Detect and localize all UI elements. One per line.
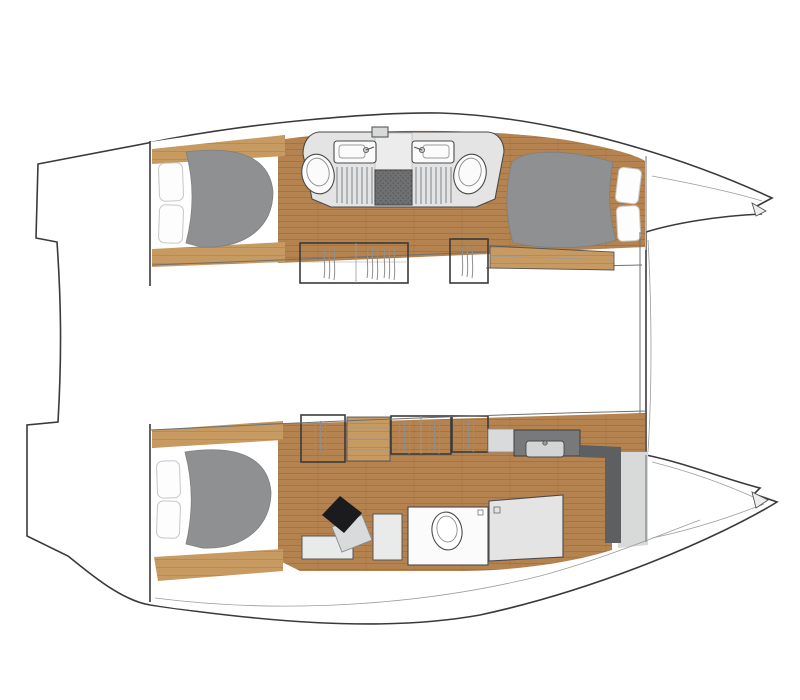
stbd-aft-pillow-2 — [156, 501, 180, 539]
saloon-forward-edge-2 — [648, 240, 651, 452]
stbd-aft-pillow-1 — [156, 461, 180, 499]
port-bathrooms — [298, 132, 504, 207]
stbd-bow-inboard-deck — [618, 450, 648, 548]
bench-seat-2 — [373, 514, 402, 560]
mast-step — [372, 127, 388, 137]
central-shower-floor — [375, 170, 412, 205]
port-bow-inner-line — [652, 176, 762, 201]
stbd-shower-stall — [489, 495, 563, 561]
bathroom-entry-landing — [375, 133, 412, 171]
port-fwd-berth-duvet — [507, 152, 616, 247]
catamaran-floor-plan — [0, 0, 800, 700]
sink-left — [334, 141, 376, 163]
port-aft-pillow-2 — [158, 205, 183, 244]
port-fwd-pillow-1 — [615, 167, 642, 205]
floor-plan-canvas — [0, 0, 800, 700]
stbd-bow-lower-line — [652, 504, 764, 538]
sink-right — [412, 141, 454, 163]
stbd-bow-inner-line — [652, 462, 760, 500]
stbd-bow-anchor-notch — [752, 492, 768, 508]
port-bow — [652, 176, 766, 216]
vanity-landing — [488, 429, 514, 452]
port-fwd-pillow-2 — [616, 205, 641, 241]
port-aft-pillow-1 — [158, 163, 183, 202]
starboard-hull — [150, 411, 700, 613]
vanity-faucet-icon — [543, 441, 547, 445]
